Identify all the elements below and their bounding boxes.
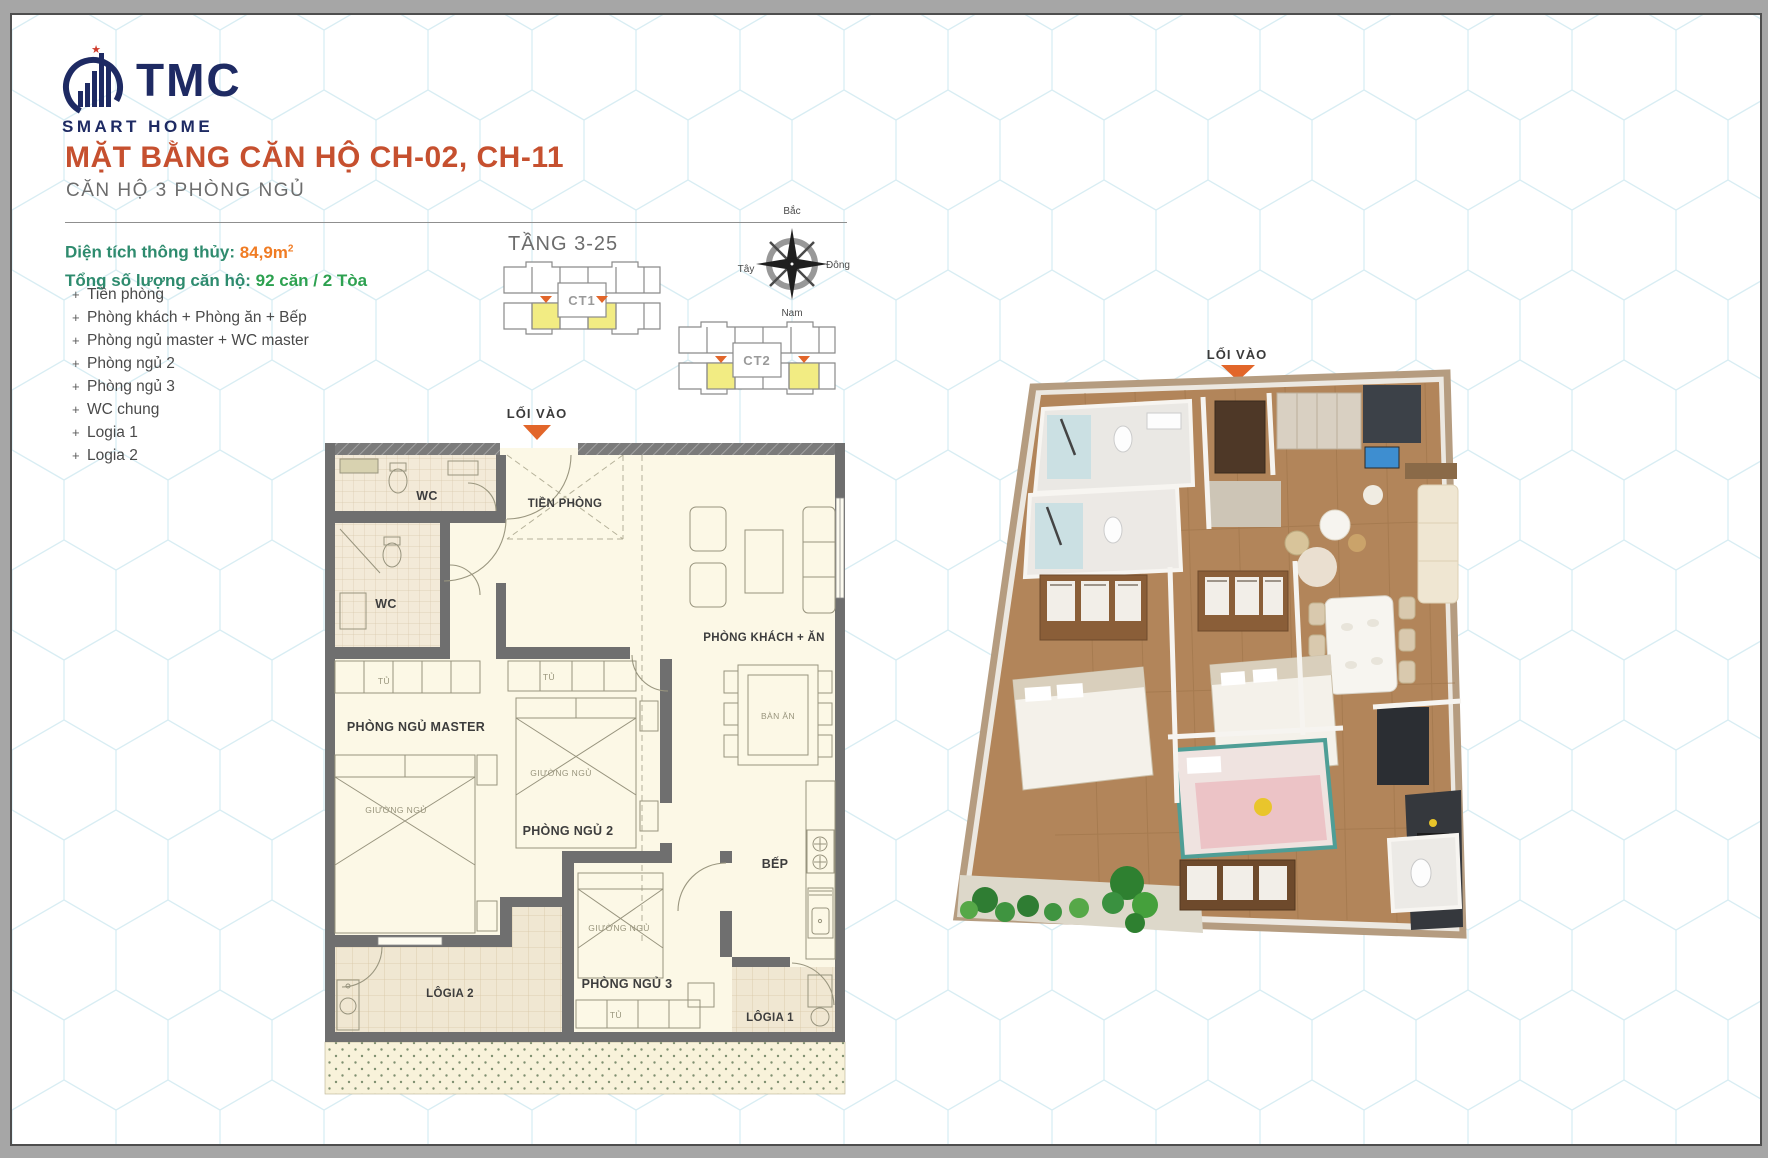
logia1-label: LÔGIA 1	[746, 1011, 794, 1024]
tower-ct2-keyplan: CT2	[667, 315, 852, 405]
spec-area-label: Diện tích thông thủy:	[65, 243, 235, 262]
wc2-floor	[335, 523, 440, 647]
brand-tagline: SMART HOME	[62, 117, 213, 137]
list-item: Phòng ngủ 3	[72, 375, 309, 398]
entry-arrow-icon	[523, 425, 551, 440]
bed3-label: PHÒNG NGỦ 3	[582, 976, 673, 991]
brand-name: TMC	[136, 53, 242, 107]
header-divider	[65, 222, 847, 223]
compass-east-label: Đông	[826, 260, 850, 271]
list-item: Logia 2	[72, 444, 309, 467]
tower-ct1-label: CT1	[568, 293, 596, 308]
floor-range-label: TẦNG 3-25	[508, 233, 618, 256]
bed2-label: PHÒNG NGỦ 2	[523, 823, 614, 838]
exterior-strip	[325, 1042, 845, 1094]
list-item: Phòng khách + Phòng ăn + Bếp	[72, 306, 309, 329]
page-subtitle: CĂN HỘ 3 PHÒNG NGỦ	[66, 180, 305, 202]
wardrobe-label: TỦ	[378, 675, 390, 686]
list-item: WC chung	[72, 398, 309, 421]
floor-plan-3d: LỐI VÀO	[865, 335, 1480, 983]
spec-area-value: 84,9m2	[240, 243, 294, 262]
compass-south-label: Nam	[781, 308, 802, 319]
bed-label: GIƯỜNG NGỦ	[588, 922, 650, 933]
brand-logo: ★ TMC	[60, 39, 242, 121]
spec-area: Diện tích thông thủy: 84,9m2	[65, 235, 367, 267]
logia2-label: LÔGIA 2	[426, 987, 474, 1000]
kitchen-label: BẾP	[762, 856, 789, 871]
wc1-label: WC	[416, 489, 437, 503]
page-title: MẶT BẰNG CĂN HỘ CH-02, CH-11	[65, 141, 564, 175]
tower-ct2-label: CT2	[743, 353, 771, 368]
bed-label: GIƯỜNG NGỦ	[530, 767, 592, 778]
wardrobe-label: TỦ	[543, 671, 555, 682]
entry-label-2d: LỐI VÀO	[507, 406, 567, 421]
brochure-page: ★ TMC SMART HOME MẶT BẰNG CĂN HỘ CH-02, …	[10, 13, 1762, 1146]
list-item: Phòng ngủ 2	[72, 352, 309, 375]
floor-plan-2d: LỐI VÀO	[320, 403, 855, 1103]
living-label: PHÒNG KHÁCH + ĂN	[703, 631, 824, 644]
unit-marker-arrow-icon	[798, 356, 810, 363]
logo-star-icon: ★	[91, 44, 101, 56]
list-item: Logia 1	[72, 421, 309, 444]
tmc-building-icon: ★	[60, 39, 130, 121]
list-item: Tiền phòng	[72, 283, 309, 306]
logia2-door	[378, 937, 442, 945]
unit-marker-arrow-icon	[540, 296, 552, 303]
entry-label-3d: LỐI VÀO	[1207, 347, 1267, 362]
list-item: Phòng ngủ master + WC master	[72, 329, 309, 352]
bathrooms-3d	[1025, 401, 1193, 577]
bed-label: GIƯỜNG NGỦ	[365, 804, 427, 815]
compass-north-label: Bắc	[783, 204, 800, 217]
wc2-label: WC	[375, 597, 396, 611]
room-list: Tiền phòng Phòng khách + Phòng ăn + Bếp …	[72, 283, 309, 467]
tower-ct1-keyplan: CT1	[492, 255, 677, 345]
compass-rose-icon: Bắc Nam Đông Tây	[734, 198, 858, 322]
master-label: PHÒNG NGỦ MASTER	[347, 719, 485, 734]
bath3-3d	[1389, 835, 1460, 911]
dining-table-label: BÀN ĂN	[761, 711, 795, 721]
wardrobe-label: TỦ	[610, 1009, 622, 1020]
unit-marker-arrow-icon	[715, 356, 727, 363]
hall-label: TIỀN PHÒNG	[528, 497, 603, 510]
compass-west-label: Tây	[738, 264, 755, 275]
